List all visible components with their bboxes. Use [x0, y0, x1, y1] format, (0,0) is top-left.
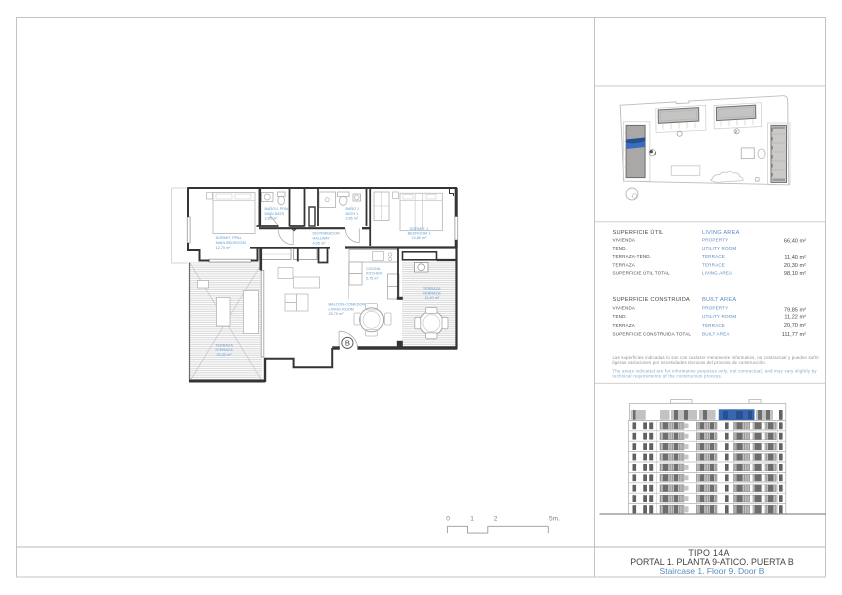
- svg-text:1: 1: [470, 516, 474, 523]
- svg-text:TERRACE: TERRACE: [423, 292, 442, 296]
- svg-text:technical requirements of the: technical requirements of the constructi…: [613, 374, 723, 379]
- svg-text:TERRAZA: TERRAZA: [613, 262, 636, 267]
- svg-text:111,77 m²: 111,77 m²: [782, 332, 806, 338]
- svg-text:DISTRIBUIDOR: DISTRIBUIDOR: [313, 232, 340, 236]
- svg-text:TERRACE: TERRACE: [215, 348, 234, 352]
- svg-text:LIVING AREA: LIVING AREA: [702, 230, 740, 236]
- svg-text:ligeras variaciones por necesi: ligeras variaciones por necesidades técn…: [613, 360, 767, 365]
- svg-text:12,75 m²: 12,75 m²: [216, 246, 232, 250]
- svg-text:DORMIT. PPAL: DORMIT. PPAL: [216, 236, 242, 240]
- svg-text:B: B: [345, 339, 350, 348]
- svg-text:VIVIENDA: VIVIENDA: [613, 238, 636, 243]
- svg-text:BUILT AREA: BUILT AREA: [702, 297, 736, 303]
- svg-text:20,70 m²: 20,70 m²: [784, 323, 806, 329]
- svg-text:20,30 m²: 20,30 m²: [217, 353, 233, 357]
- svg-text:SUPERFICIE CONSTRUIDA TOTAL: SUPERFICIE CONSTRUIDA TOTAL: [613, 332, 692, 337]
- svg-text:2: 2: [494, 516, 498, 523]
- svg-text:11,40 m²: 11,40 m²: [784, 255, 806, 261]
- svg-text:11,22 m²: 11,22 m²: [784, 315, 806, 321]
- svg-text:BAÑO/J. PPAL: BAÑO/J. PPAL: [265, 206, 290, 211]
- svg-text:0: 0: [446, 516, 450, 523]
- svg-text:UTILITY ROOM: UTILITY ROOM: [702, 314, 736, 319]
- svg-text:HALLWAY: HALLWAY: [313, 237, 331, 241]
- svg-text:MAIN BEDROOM: MAIN BEDROOM: [216, 241, 246, 245]
- svg-text:BUILT AREA: BUILT AREA: [702, 332, 730, 337]
- svg-text:DORMIT. 1: DORMIT. 1: [410, 227, 429, 231]
- svg-text:5m.: 5m.: [549, 516, 560, 523]
- svg-text:UTILITY ROOM: UTILITY ROOM: [702, 246, 736, 251]
- svg-text:10,80 m²: 10,80 m²: [412, 236, 428, 240]
- svg-text:TERRAZA-TEND.: TERRAZA-TEND.: [613, 254, 652, 259]
- svg-text:66,40 m²: 66,40 m²: [784, 238, 806, 244]
- svg-text:BALCON-COMEDOR: BALCON-COMEDOR: [329, 303, 366, 307]
- svg-text:SUPERFICIE ÚTIL: SUPERFICIE ÚTIL: [613, 229, 664, 236]
- svg-text:LIVING AREA: LIVING AREA: [702, 270, 733, 275]
- svg-text:3,85 m²: 3,85 m²: [346, 217, 359, 221]
- svg-text:20,30 m²: 20,30 m²: [784, 263, 806, 269]
- svg-text:5,75 m²: 5,75 m²: [366, 276, 379, 280]
- svg-text:BAÑO 1: BAÑO 1: [346, 206, 360, 211]
- svg-text:SUPERFICIE ÚTIL TOTAL: SUPERFICIE ÚTIL TOTAL: [613, 269, 671, 275]
- svg-text:TERRAZA: TERRAZA: [423, 287, 441, 291]
- svg-text:BATH 1: BATH 1: [346, 212, 359, 216]
- svg-text:TERRACE: TERRACE: [702, 262, 725, 267]
- svg-text:MAIN BATH: MAIN BATH: [265, 212, 285, 216]
- svg-text:79,85 m²: 79,85 m²: [784, 308, 806, 314]
- svg-text:SUPERFICIE CONSTRUIDA: SUPERFICIE CONSTRUIDA: [613, 297, 691, 303]
- svg-text:TEND.: TEND.: [613, 246, 628, 251]
- svg-text:PROPERTY: PROPERTY: [702, 238, 728, 243]
- svg-text:TERRACE: TERRACE: [702, 254, 725, 259]
- svg-text:PROPERTY: PROPERTY: [702, 305, 728, 310]
- svg-text:98,10 m²: 98,10 m²: [784, 271, 806, 277]
- svg-text:TERRAZA: TERRAZA: [613, 323, 636, 328]
- svg-text:LIVING ROOM: LIVING ROOM: [329, 307, 354, 311]
- svg-text:4,05 m²: 4,05 m²: [313, 242, 327, 246]
- svg-text:11,40 m²: 11,40 m²: [424, 296, 439, 300]
- svg-text:VIVIENDA: VIVIENDA: [613, 305, 636, 310]
- svg-text:TERRAZA: TERRAZA: [215, 344, 233, 348]
- svg-text:KITCHEN: KITCHEN: [366, 272, 383, 276]
- svg-text:TEND.: TEND.: [613, 314, 628, 319]
- svg-text:BEDROOM 1: BEDROOM 1: [408, 232, 431, 236]
- svg-text:Staircase 1. Floor 9. Door B: Staircase 1. Floor 9. Door B: [660, 566, 765, 576]
- svg-text:COCINA: COCINA: [366, 267, 381, 271]
- svg-text:25,75 m²: 25,75 m²: [329, 312, 345, 316]
- svg-text:TERRACE: TERRACE: [702, 323, 725, 328]
